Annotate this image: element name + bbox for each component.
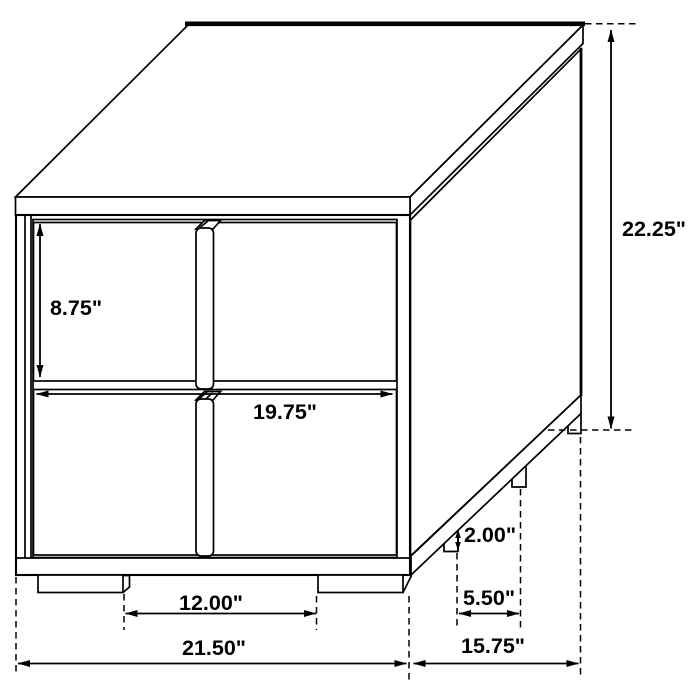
- front-foot-right-bevel: [403, 576, 412, 593]
- dim-label-interior-width: 19.75": [253, 400, 317, 424]
- dim-label-front-foot-spacing: 12.00": [179, 591, 243, 615]
- front-foot-right: [318, 575, 403, 593]
- drawer-handle-top: [196, 228, 214, 389]
- dim-label-side-foot-spacing: 5.50": [463, 586, 515, 610]
- dim-label-overall-width: 21.50": [182, 636, 246, 660]
- front-foot-left: [38, 575, 123, 593]
- dim-label-foot-height: 2.00": [464, 523, 516, 547]
- dimension-diagram-page: 8.75" 22.25" 19.75" 2.00" 5.50" 12.00" 2…: [0, 0, 700, 700]
- tabletop-front-edge: [16, 197, 411, 215]
- dim-label-overall-height: 22.25": [622, 217, 686, 241]
- nightstand-dimension-diagram: 8.75" 22.25" 19.75" 2.00" 5.50" 12.00" 2…: [0, 0, 700, 700]
- front-foot-left-bevel: [123, 576, 130, 593]
- drawer-handle-bottom: [196, 399, 214, 556]
- dim-label-drawer-height: 8.75": [50, 296, 102, 320]
- dim-label-overall-depth: 15.75": [461, 634, 525, 658]
- drawer-bottom-face: [34, 390, 397, 556]
